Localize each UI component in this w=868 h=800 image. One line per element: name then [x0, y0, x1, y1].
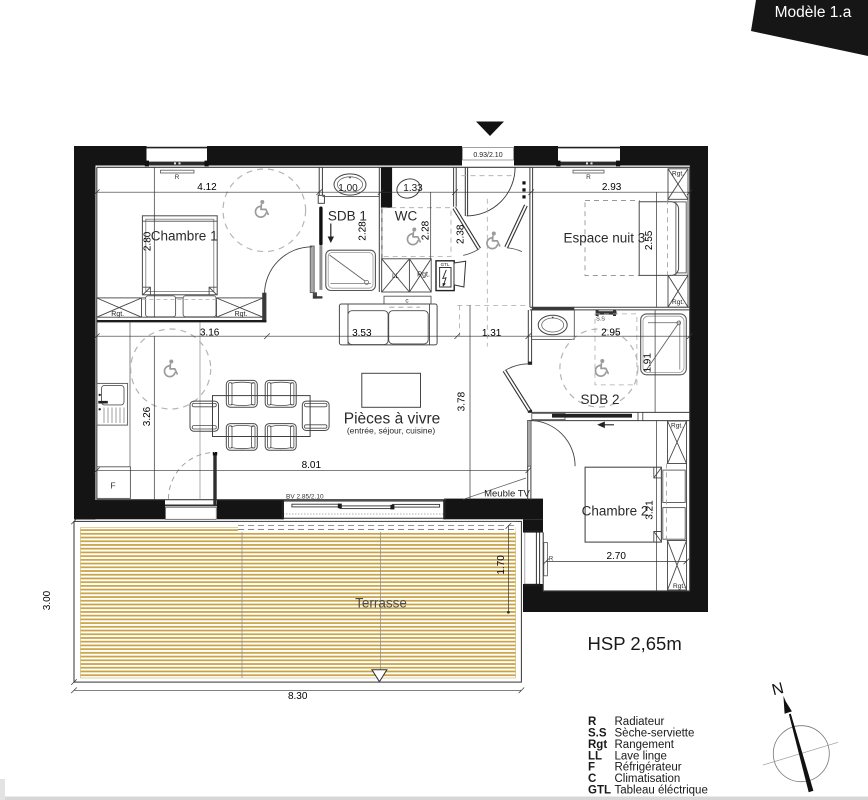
svg-text:1.70: 1.70 — [496, 555, 507, 575]
svg-text:SDB 1: SDB 1 — [328, 208, 367, 223]
svg-text:S.S: S.S — [588, 727, 607, 739]
svg-text:LL: LL — [588, 750, 602, 762]
svg-text:SDB 2: SDB 2 — [580, 392, 619, 407]
svg-text:3.21: 3.21 — [644, 500, 655, 520]
svg-text:3.00: 3.00 — [42, 590, 53, 610]
svg-text:3.78: 3.78 — [457, 391, 468, 411]
svg-text:8.01: 8.01 — [302, 460, 322, 471]
svg-text:2.28: 2.28 — [421, 220, 432, 240]
svg-text:8.30: 8.30 — [288, 691, 308, 702]
svg-text:Tableau éléctrique: Tableau éléctrique — [615, 785, 708, 797]
svg-text:R: R — [588, 716, 597, 728]
svg-text:2.93: 2.93 — [602, 182, 622, 193]
svg-text:Sèche-serviette: Sèche-serviette — [615, 727, 695, 739]
svg-text:2.38: 2.38 — [456, 224, 467, 244]
svg-text:3.53: 3.53 — [352, 328, 372, 339]
svg-text:3.26: 3.26 — [142, 406, 153, 426]
svg-text:2.80: 2.80 — [143, 231, 154, 251]
svg-text:C: C — [588, 773, 596, 785]
svg-text:2.55: 2.55 — [644, 230, 655, 250]
svg-text:Chambre 2: Chambre 2 — [582, 504, 649, 519]
svg-text:Rangement: Rangement — [615, 739, 675, 751]
svg-text:(entrée, séjour, cuisine): (entrée, séjour, cuisine) — [347, 425, 436, 435]
svg-text:LL: LL — [392, 274, 399, 280]
svg-text:Modèle 1.a: Modèle 1.a — [775, 4, 852, 21]
svg-text:WC: WC — [395, 208, 418, 223]
svg-text:2.28: 2.28 — [358, 221, 369, 241]
svg-text:F: F — [588, 762, 595, 774]
svg-text:2.70: 2.70 — [606, 551, 626, 562]
svg-text:HSP 2,65m: HSP 2,65m — [588, 633, 682, 654]
svg-text:Espace nuit 3: Espace nuit 3 — [563, 231, 645, 246]
svg-text:F: F — [110, 481, 115, 491]
svg-text:4.12: 4.12 — [197, 182, 217, 193]
svg-text:Meuble TV: Meuble TV — [484, 489, 530, 500]
svg-text:BV 2.85/2.10: BV 2.85/2.10 — [286, 494, 324, 501]
svg-text:R: R — [586, 174, 591, 181]
svg-text:Climatisation: Climatisation — [615, 773, 681, 785]
svg-text:S.S: S.S — [596, 317, 605, 323]
svg-text:GTL: GTL — [588, 785, 611, 797]
svg-text:1.31: 1.31 — [482, 328, 502, 339]
svg-text:Rgt.: Rgt. — [235, 311, 248, 318]
svg-text:Réfrigérateur: Réfrigérateur — [615, 762, 682, 774]
svg-text:Rgt: Rgt — [588, 739, 607, 751]
svg-text:0.93/2.10: 0.93/2.10 — [473, 152, 502, 159]
svg-text:Rgt.: Rgt. — [672, 171, 684, 178]
svg-text:Chambre 1: Chambre 1 — [151, 228, 218, 243]
svg-text:Rgt.: Rgt. — [673, 583, 685, 590]
svg-text:3.16: 3.16 — [200, 328, 220, 339]
svg-text:GTL: GTL — [441, 262, 450, 267]
svg-text:Radiateur: Radiateur — [615, 716, 665, 728]
svg-text:2.95: 2.95 — [601, 328, 621, 339]
svg-text:Rgt.: Rgt. — [672, 299, 684, 306]
svg-text:Lave linge: Lave linge — [615, 750, 667, 762]
svg-text:Rgt.: Rgt. — [671, 423, 683, 430]
svg-text:1.91: 1.91 — [643, 353, 654, 373]
svg-text:Rgt.: Rgt. — [417, 272, 430, 279]
svg-text:R: R — [175, 174, 180, 181]
svg-text:Rgt.: Rgt. — [111, 311, 124, 318]
svg-text:Terrasse: Terrasse — [355, 596, 407, 611]
